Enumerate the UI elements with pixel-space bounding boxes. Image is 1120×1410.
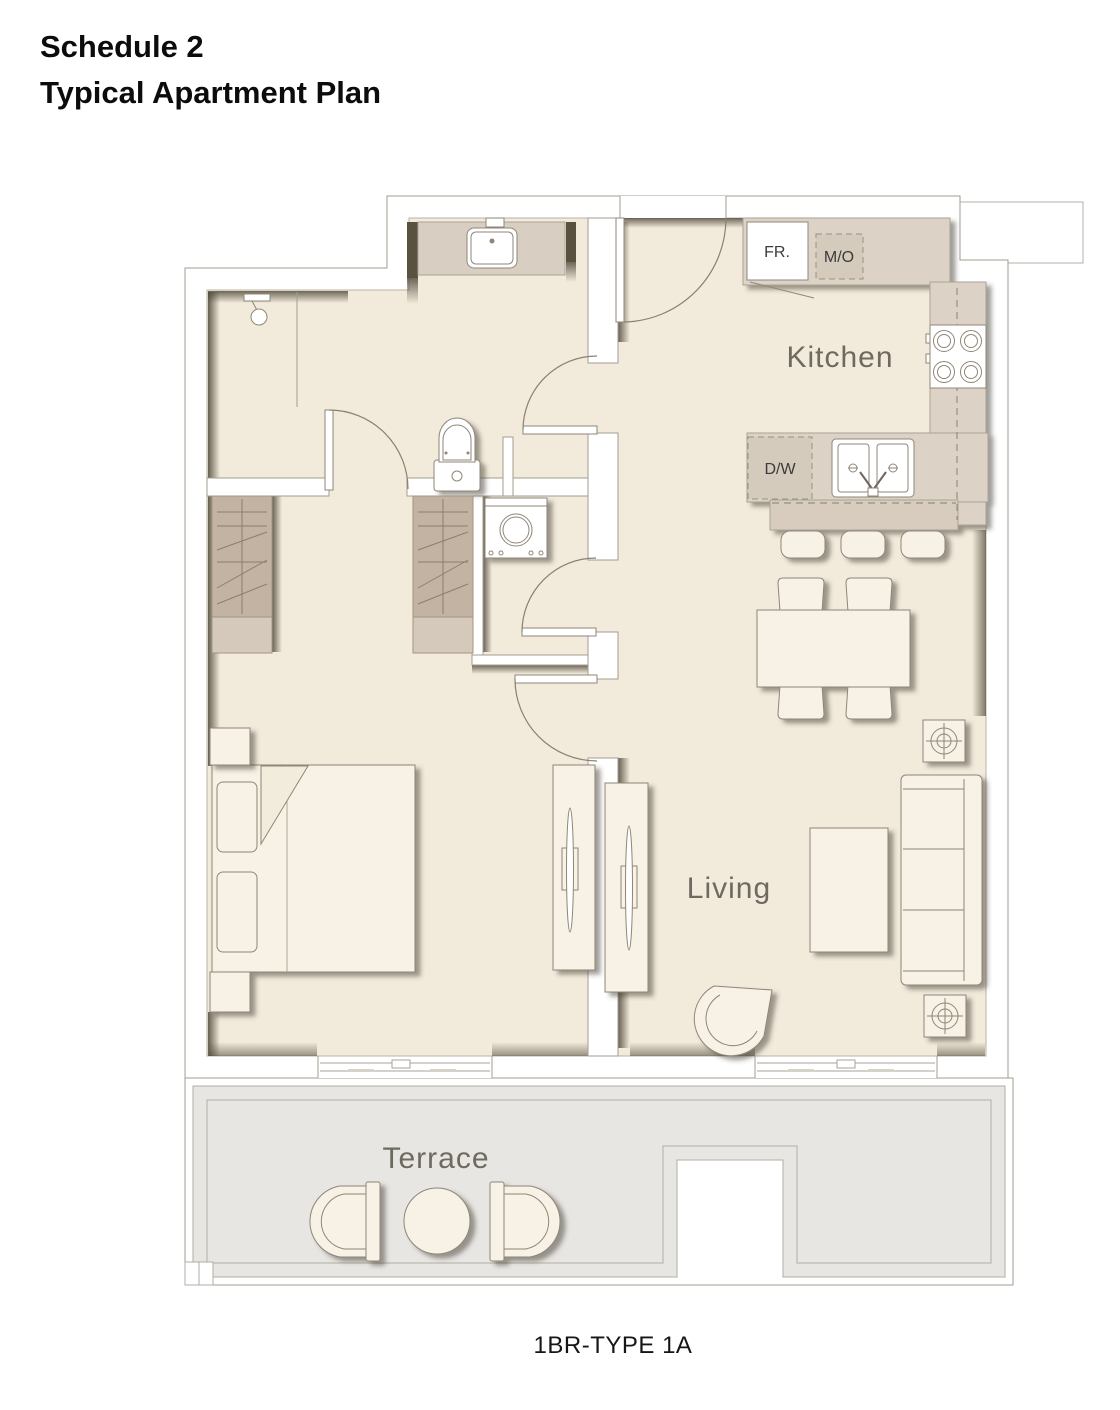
side-table-icon (924, 995, 966, 1037)
dishwasher-label: D/W (764, 461, 796, 478)
nightstand (210, 728, 250, 765)
bedroom-window (318, 1056, 492, 1078)
tv-console-bedroom (553, 765, 595, 970)
washing-machine-icon (485, 498, 547, 558)
side-table-icon (923, 720, 965, 762)
microwave-label: M/O (824, 249, 854, 266)
sofa (901, 775, 982, 985)
vanity-counter (418, 218, 565, 275)
kitchen-sink-icon (832, 439, 914, 497)
dishwasher: D/W (748, 437, 812, 499)
floor-plan-page: Schedule 2 Typical Apartment Plan (0, 0, 1120, 1410)
dining-table (757, 610, 910, 687)
kitchen-label: Kitchen (786, 341, 893, 374)
wardrobe-icon (413, 496, 473, 653)
kitchen-island-bar (770, 500, 958, 530)
floor-plan-drawing: Terrace (0, 0, 1120, 1410)
bedroom (210, 728, 415, 1012)
living-label: Living (687, 872, 771, 905)
plan-type-label: 1BR-TYPE 1A (534, 1332, 693, 1360)
terrace-furniture (310, 1182, 560, 1261)
terrace-floor (193, 1086, 1005, 1277)
terrace-table-icon (404, 1188, 470, 1254)
pillow (217, 872, 257, 952)
terrace-label: Terrace (382, 1142, 489, 1175)
bar-stools (781, 531, 945, 558)
stove-icon (926, 325, 986, 388)
wardrobe-icon (212, 496, 272, 653)
terrace: Terrace (185, 1078, 1013, 1285)
living-window (755, 1056, 937, 1078)
microwave: M/O (816, 234, 863, 279)
toilet-icon (434, 418, 480, 491)
bed (212, 765, 415, 972)
tv-console-living (605, 783, 648, 992)
fridge-label: FR. (764, 244, 790, 261)
coffee-table (810, 828, 888, 952)
nightstand (210, 972, 250, 1012)
pillow (217, 782, 257, 852)
